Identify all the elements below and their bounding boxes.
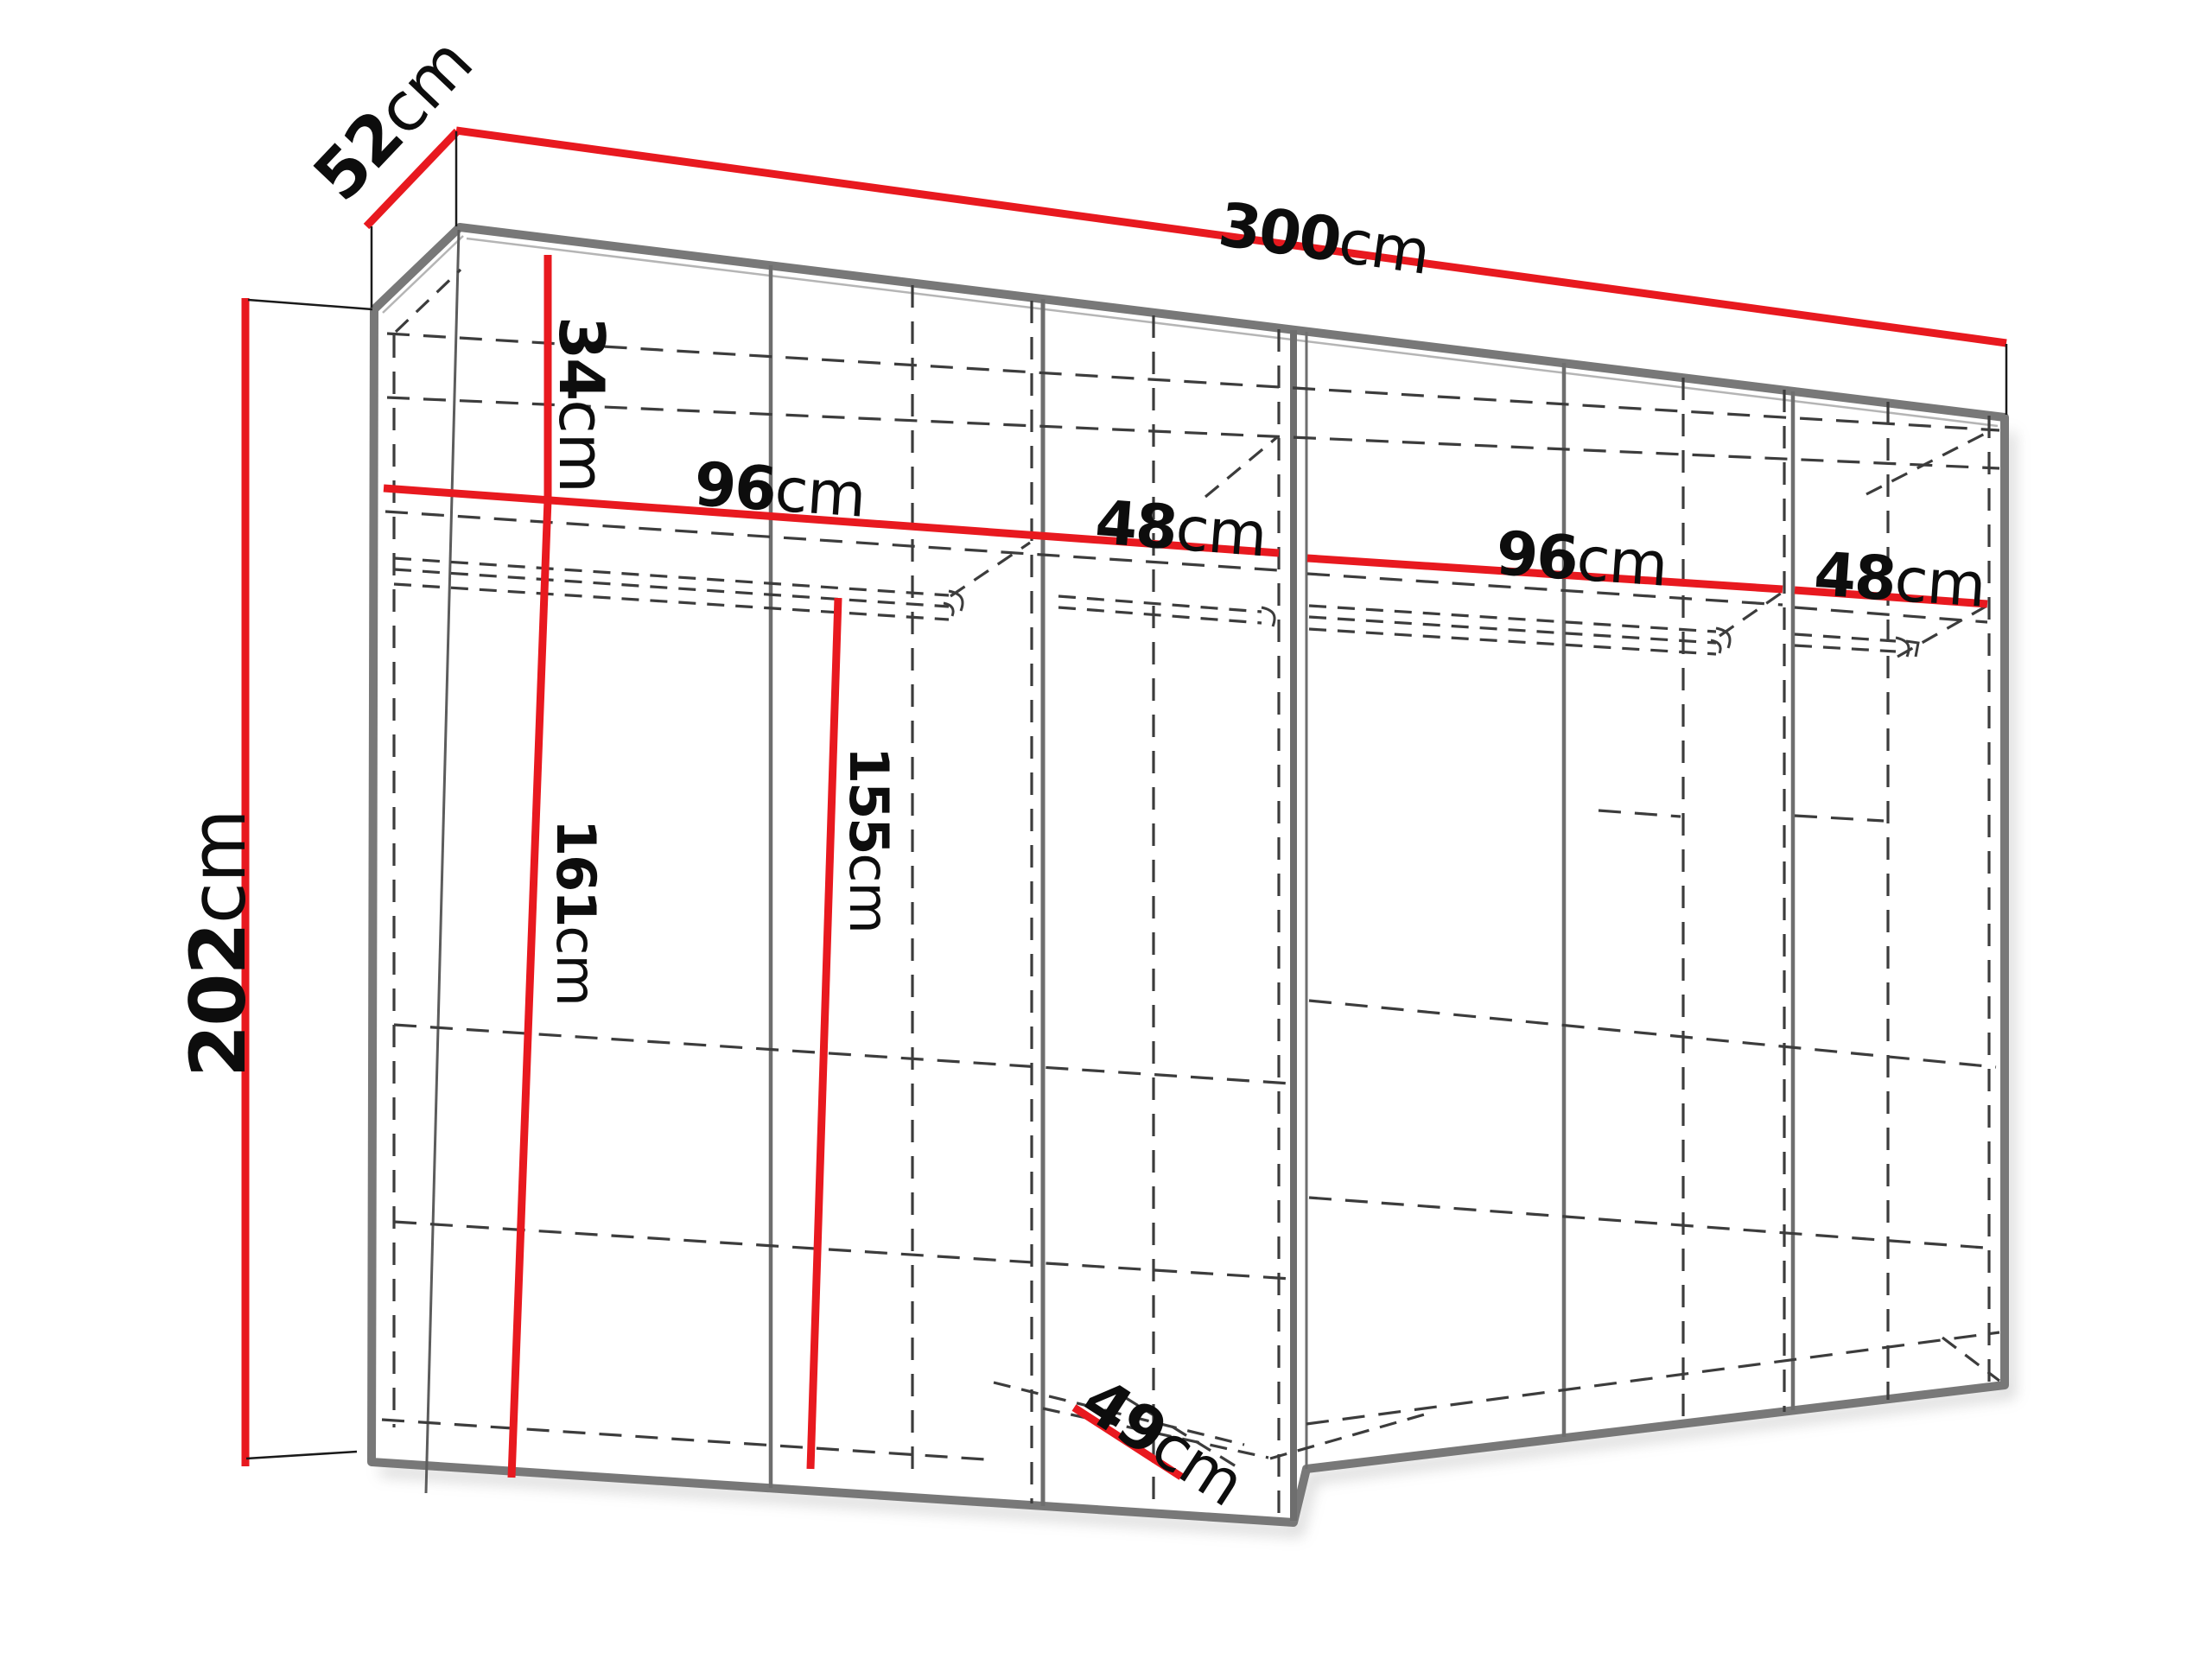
label-sec4: 48cm [1812,538,1987,621]
label-left-hang: 161cm [544,819,607,1006]
wardrobe-dimension-diagram: 300cm 52cm 202cm 34cm 161cm 155cm 96cm 4… [0,0,2212,1659]
label-width: 300cm [1215,189,1434,289]
diagram-canvas: 300cm 52cm 202cm 34cm 161cm 155cm 96cm 4… [0,0,2212,1659]
label-top-section: 34cm [545,316,618,493]
label-depth: 52cm [299,24,487,217]
label-height: 202cm [174,810,263,1077]
label-sec2: 48cm [1093,486,1269,570]
label-sec1: 96cm [692,448,868,531]
label-mid-hang: 155cm [837,747,900,933]
label-sec3: 96cm [1494,518,1669,601]
